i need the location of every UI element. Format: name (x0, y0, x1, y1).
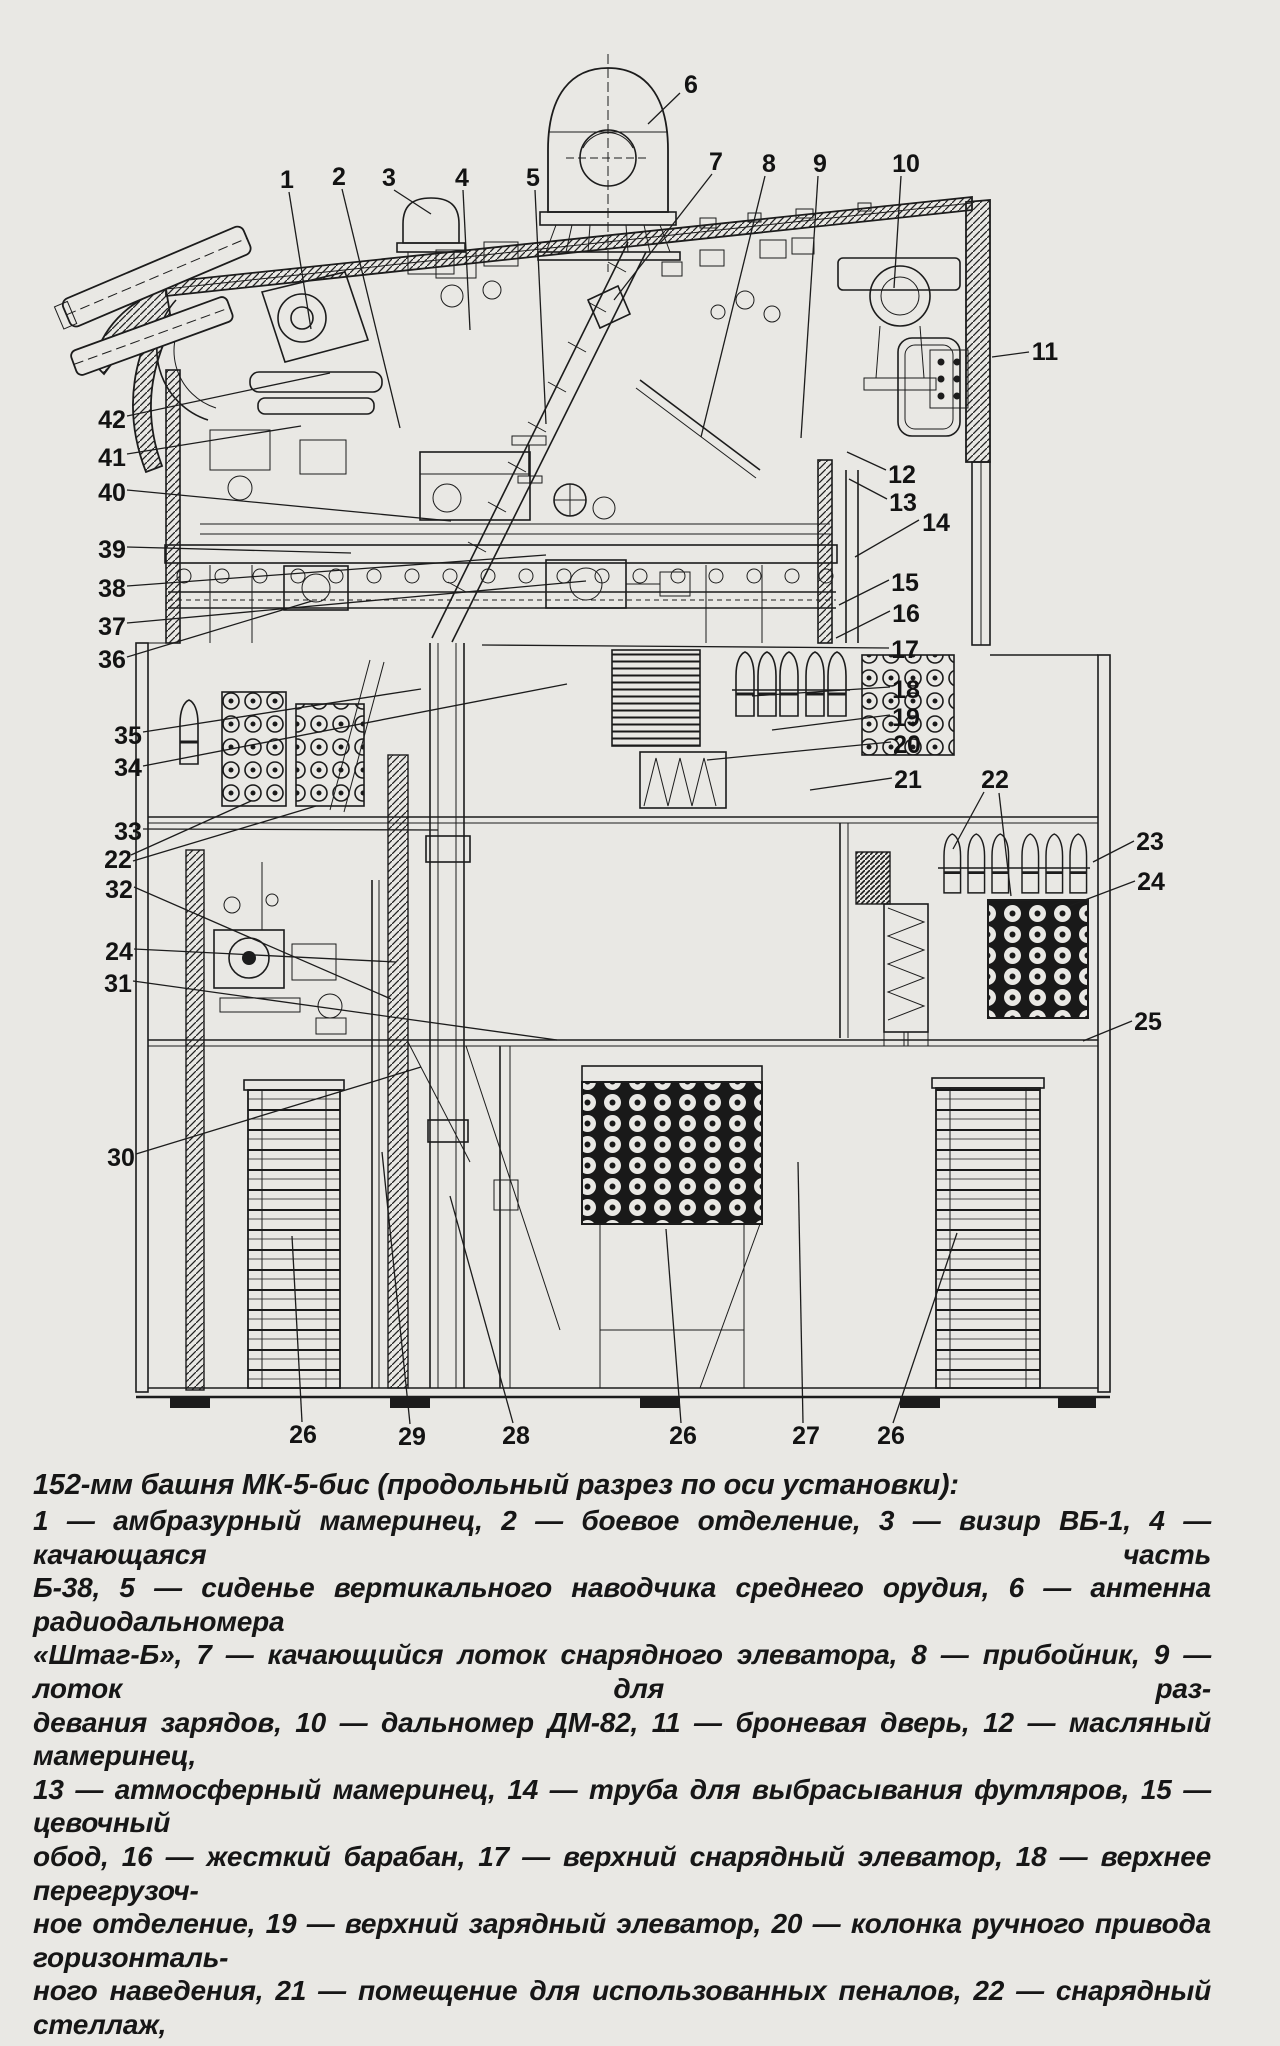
charge-stowage-center (582, 1066, 762, 1388)
scanned-page: 1234567891011121314151617181920212223242… (0, 0, 1280, 2046)
part-label-22: 22 (104, 846, 132, 874)
caption-line: «Штаг-Б», 7 — качающийся лоток снарядног… (33, 1638, 1211, 1705)
leader-line (134, 949, 396, 962)
part-label-19: 19 (892, 704, 920, 732)
part-label-4: 4 (455, 164, 469, 192)
part-label-13: 13 (889, 489, 917, 517)
leader-line (127, 601, 312, 657)
leader-line (131, 801, 251, 855)
part-label-7: 7 (709, 148, 723, 176)
part-label-41: 41 (98, 444, 126, 472)
part-label-42: 42 (98, 406, 126, 434)
armored-door (898, 338, 960, 436)
part-label-24: 24 (105, 938, 133, 966)
caption-line: 13 — атмосферный мамеринец, 14 — труба д… (33, 1773, 1211, 1840)
part-label-23: 23 (1136, 828, 1164, 856)
caption-title: 152-мм башня МК-5-бис (продольный разрез… (33, 1466, 1211, 1504)
part-label-18: 18 (892, 676, 920, 704)
part-label-15: 15 (891, 569, 919, 597)
part-label-33: 33 (114, 818, 142, 846)
caption-line: ного наведения, 21 — помещение для испол… (33, 1974, 1211, 2041)
caption-line: 1 — амбразурный мамеринец, 2 — боевое от… (33, 1504, 1211, 1571)
caption-line: Б-38, 5 — сиденье вертикального наводчик… (33, 1571, 1211, 1638)
leader-line (127, 547, 351, 553)
part-label-14: 14 (922, 509, 950, 537)
charge-rack-right (932, 1078, 1044, 1388)
instrument-cluster (662, 238, 968, 408)
leader-line (836, 611, 890, 638)
part-label-28: 28 (502, 1422, 530, 1450)
part-label-29: 29 (398, 1423, 426, 1451)
part-label-26: 26 (289, 1421, 317, 1449)
figure-caption: 152-мм башня МК-5-бис (продольный разрез… (33, 1466, 1211, 2046)
part-label-20: 20 (893, 731, 921, 759)
ball-race-rollers (165, 545, 837, 608)
part-label-2: 2 (332, 163, 346, 191)
part-label-17: 17 (891, 636, 919, 664)
turret-rear-wall-armor (966, 200, 990, 645)
right-room-shell-magazine (856, 834, 1090, 1046)
part-label-6: 6 (684, 71, 698, 99)
leader-line (894, 176, 901, 288)
caption-line: ное отделение, 19 — верхний зарядный эле… (33, 1907, 1211, 1974)
leader-line (701, 176, 765, 437)
leader-line (847, 452, 886, 470)
leader-line (127, 581, 586, 623)
part-label-27: 27 (792, 1422, 820, 1450)
charge-rack-left (244, 1080, 344, 1388)
part-label-24: 24 (1137, 868, 1165, 896)
leader-line (810, 778, 892, 790)
part-label-3: 3 (382, 164, 396, 192)
central-supply-trunk (372, 643, 560, 1388)
leader-line (855, 520, 919, 557)
part-label-36: 36 (98, 646, 126, 674)
part-label-31: 31 (104, 970, 132, 998)
leader-line (482, 645, 889, 648)
upper-room-shell-racks (180, 650, 954, 812)
part-label-30: 30 (107, 1144, 135, 1172)
part-label-10: 10 (892, 150, 920, 178)
caption-line: обод, 16 — жесткий барабан, 17 — верхний… (33, 1840, 1211, 1907)
caption-lines: 1 — амбразурный мамеринец, 2 — боевое от… (33, 1504, 1211, 2046)
part-label-38: 38 (98, 575, 126, 603)
part-label-5: 5 (526, 164, 540, 192)
leader-line (666, 1229, 681, 1423)
shell-elevator-incline (432, 242, 760, 642)
part-label-34: 34 (114, 754, 142, 782)
part-label-16: 16 (892, 600, 920, 628)
part-label-11: 11 (1032, 338, 1059, 366)
caption-line: 23 — снарядный погреб, 24 — транспортер,… (33, 2042, 1211, 2046)
part-label-26: 26 (669, 1422, 697, 1450)
leader-line (289, 192, 311, 329)
part-label-40: 40 (98, 479, 126, 507)
part-label-25: 25 (1134, 1008, 1162, 1036)
part-label-8: 8 (762, 150, 776, 178)
part-label-9: 9 (813, 150, 827, 178)
leader-line (849, 479, 887, 499)
gun-barrels (53, 224, 382, 414)
part-label-35: 35 (114, 722, 142, 750)
part-label-26: 26 (877, 1422, 905, 1450)
leader-line (1083, 1021, 1132, 1041)
turret-cutaway-drawing: 1234567891011121314151617181920212223242… (0, 0, 1280, 1460)
part-label-37: 37 (98, 613, 126, 641)
fixed-drum-walls (166, 370, 858, 643)
leader-line (133, 806, 316, 861)
rangefinder-dm82 (838, 258, 960, 390)
leader-line (798, 1162, 803, 1423)
leader-line (1093, 841, 1134, 862)
leader-line (127, 373, 330, 416)
leader-line (992, 352, 1029, 357)
part-label-32: 32 (105, 876, 133, 904)
caption-line: девания зарядов, 10 — дальномер ДМ-82, 1… (33, 1706, 1211, 1773)
part-label-1: 1 (280, 166, 294, 194)
leader-line (450, 1196, 513, 1423)
part-label-39: 39 (98, 536, 126, 564)
part-label-12: 12 (888, 461, 916, 489)
part-label-21: 21 (894, 766, 922, 794)
gun-controls (200, 242, 830, 534)
part-label-22: 22 (981, 766, 1009, 794)
